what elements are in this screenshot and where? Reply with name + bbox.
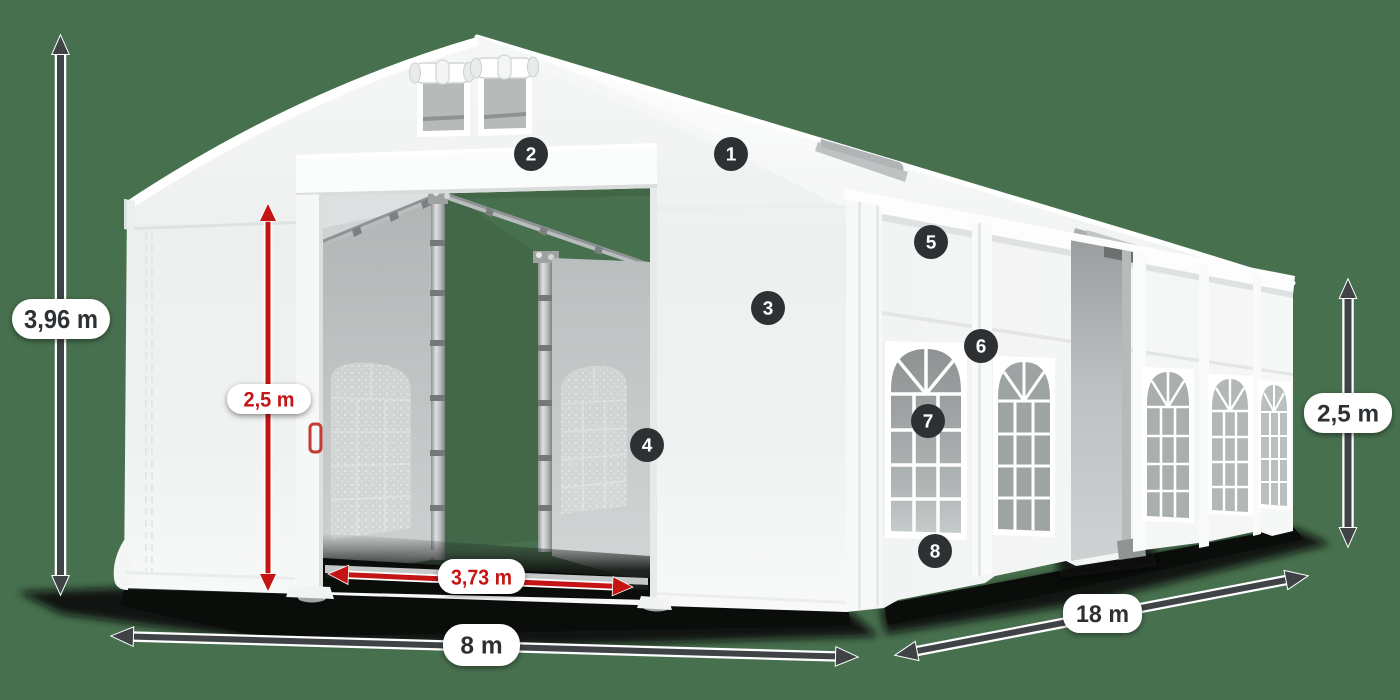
svg-text:18 m: 18 m <box>1076 601 1129 628</box>
svg-text:1: 1 <box>726 145 737 166</box>
svg-text:4: 4 <box>642 436 653 457</box>
svg-text:8: 8 <box>930 542 941 563</box>
svg-text:8 m: 8 m <box>460 633 502 660</box>
svg-text:2,5 m: 2,5 m <box>244 389 295 412</box>
svg-text:6: 6 <box>976 337 987 358</box>
svg-text:3: 3 <box>763 299 774 320</box>
svg-text:2: 2 <box>526 145 537 166</box>
svg-text:2,5 m: 2,5 m <box>1317 401 1379 428</box>
svg-text:3,73 m: 3,73 m <box>451 566 512 590</box>
svg-text:5: 5 <box>926 233 937 254</box>
svg-text:7: 7 <box>923 412 934 433</box>
svg-text:3,96 m: 3,96 m <box>24 304 98 334</box>
